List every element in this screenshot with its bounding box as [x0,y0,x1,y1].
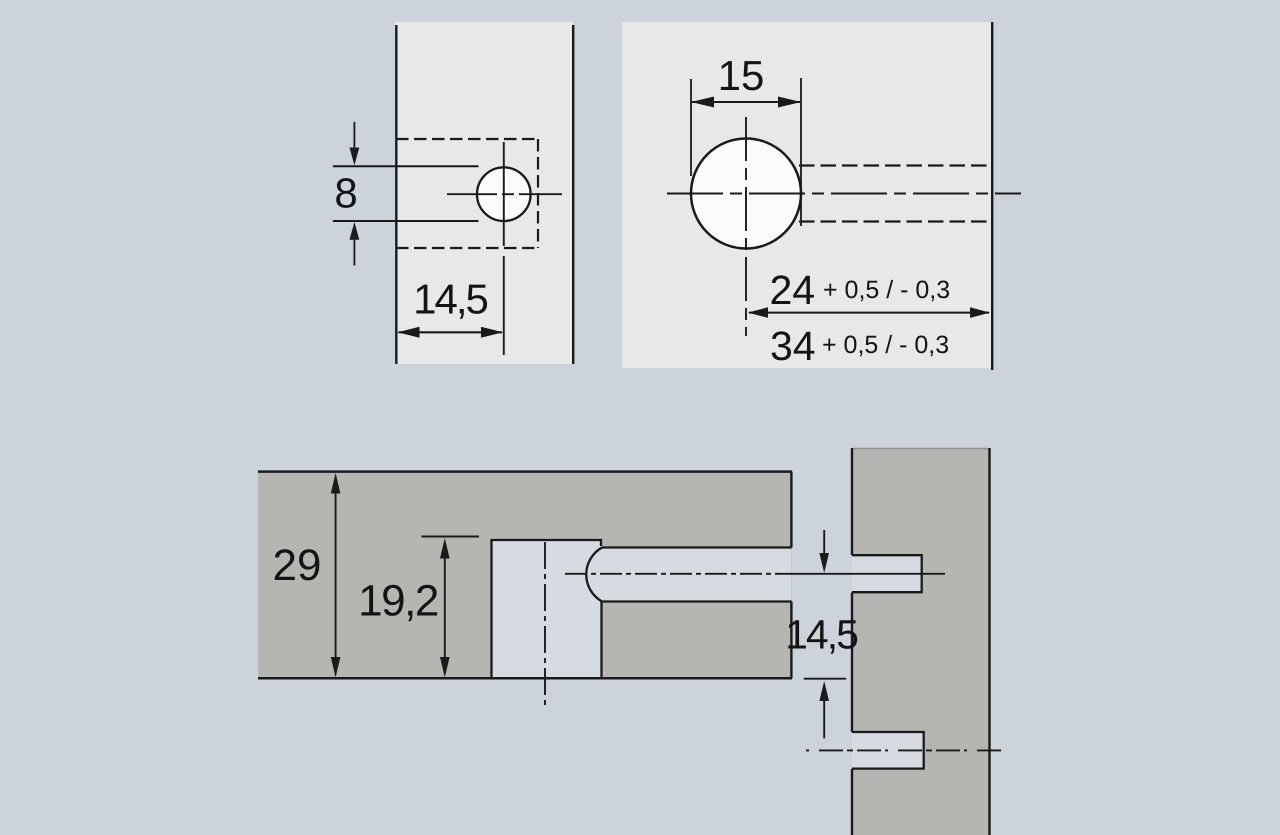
svg-text:15: 15 [718,52,765,99]
svg-text:14,5: 14,5 [413,276,487,323]
svg-text:29: 29 [273,541,322,590]
svg-text:19,2: 19,2 [358,577,438,626]
svg-text:+ 0,5 / - 0,3: + 0,5 / - 0,3 [822,331,949,359]
svg-text:34: 34 [770,323,816,369]
svg-text:24: 24 [770,267,816,313]
svg-text:+ 0,5 / - 0,3: + 0,5 / - 0,3 [823,276,950,304]
svg-text:14,5: 14,5 [785,612,858,658]
svg-text:8: 8 [334,170,357,217]
